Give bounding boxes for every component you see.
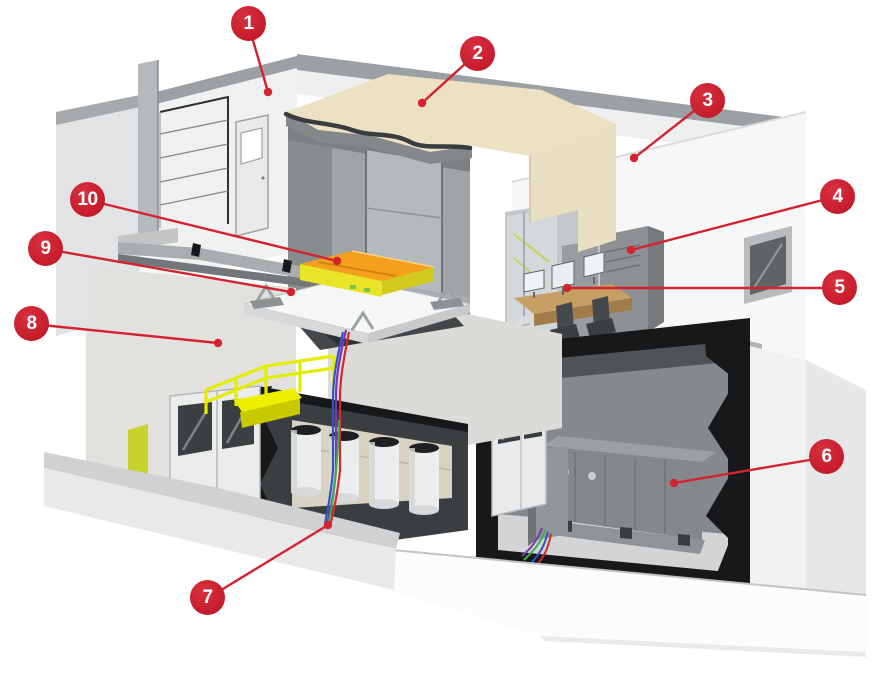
right-wall-window: [744, 226, 792, 304]
callout-badge-9: 9: [28, 231, 63, 266]
callout-badge-7: 7: [190, 580, 225, 615]
callout-badge-8: 8: [14, 306, 49, 341]
callout-badge-6: 6: [809, 439, 844, 474]
callout-badge-1: 1: [231, 6, 266, 41]
cutaway-scene: [0, 0, 879, 688]
callout-badge-2: 2: [460, 36, 495, 71]
personnel-door: [236, 115, 268, 236]
callout-badge-10: 10: [70, 182, 105, 217]
hydraulic-power-unit: [543, 436, 716, 554]
shake-table-facility-cutaway: 1 2 3 4 5 6 7 8 9 10: [0, 0, 879, 688]
callout-badge-5: 5: [822, 270, 857, 305]
right-lower-wall: [742, 344, 866, 608]
callout-badge-4: 4: [820, 179, 855, 214]
callout-badge-3: 3: [690, 83, 725, 118]
